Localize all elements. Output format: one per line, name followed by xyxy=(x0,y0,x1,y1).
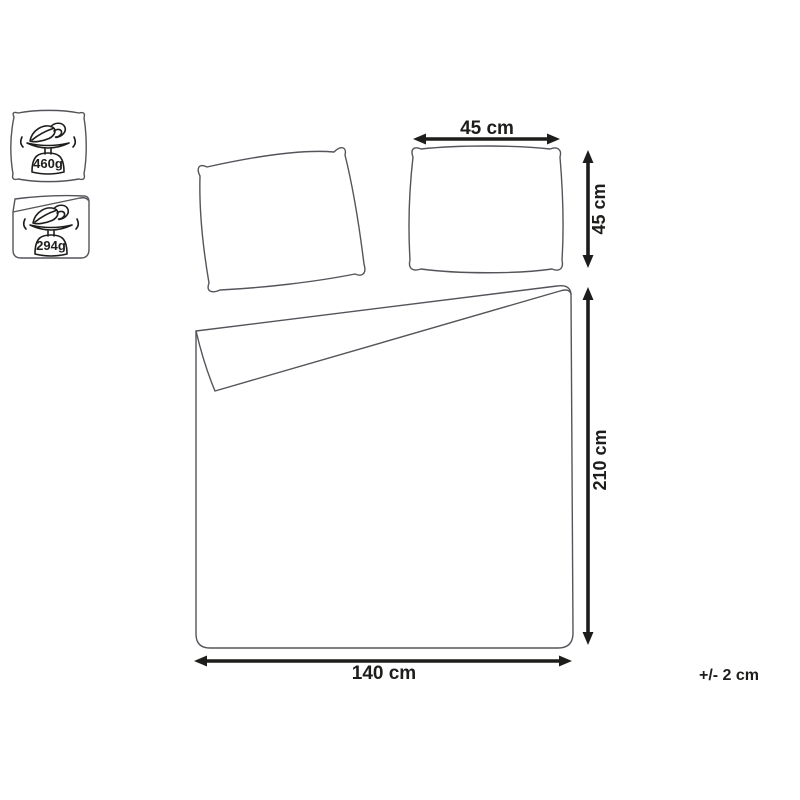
pillow-height-label: 45 cm xyxy=(589,183,609,234)
duvet-weight-label: 294g xyxy=(36,238,66,253)
product-dimension-diagram: 460g 294g 45 cm 45 xyxy=(0,0,800,800)
left-pillow-outline xyxy=(198,148,365,292)
bedding-dimensions-canvas: 460g 294g 45 cm 45 xyxy=(0,0,800,800)
pillow-width-label: 45 cm xyxy=(460,118,514,139)
duvet xyxy=(196,286,573,648)
duvet-outline xyxy=(196,286,573,648)
pillow-weight-badge: 460g xyxy=(11,110,86,181)
tolerance-label: +/- 2 cm xyxy=(699,667,759,684)
duvet-length-label: 210 cm xyxy=(590,429,610,490)
duvet-width-label: 140 cm xyxy=(352,663,416,684)
duvet-weight-badge: 294g xyxy=(13,196,89,258)
right-pillow-outline xyxy=(409,146,563,273)
pillow-weight-label: 460g xyxy=(33,156,63,171)
